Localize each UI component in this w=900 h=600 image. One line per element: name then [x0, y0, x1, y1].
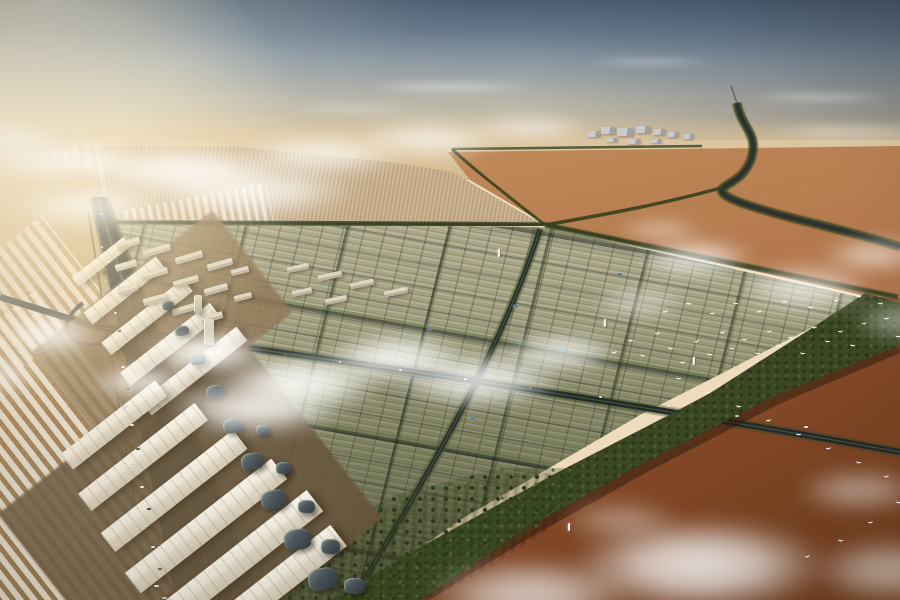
aerial-render: [0, 0, 900, 600]
vignette: [0, 0, 900, 600]
